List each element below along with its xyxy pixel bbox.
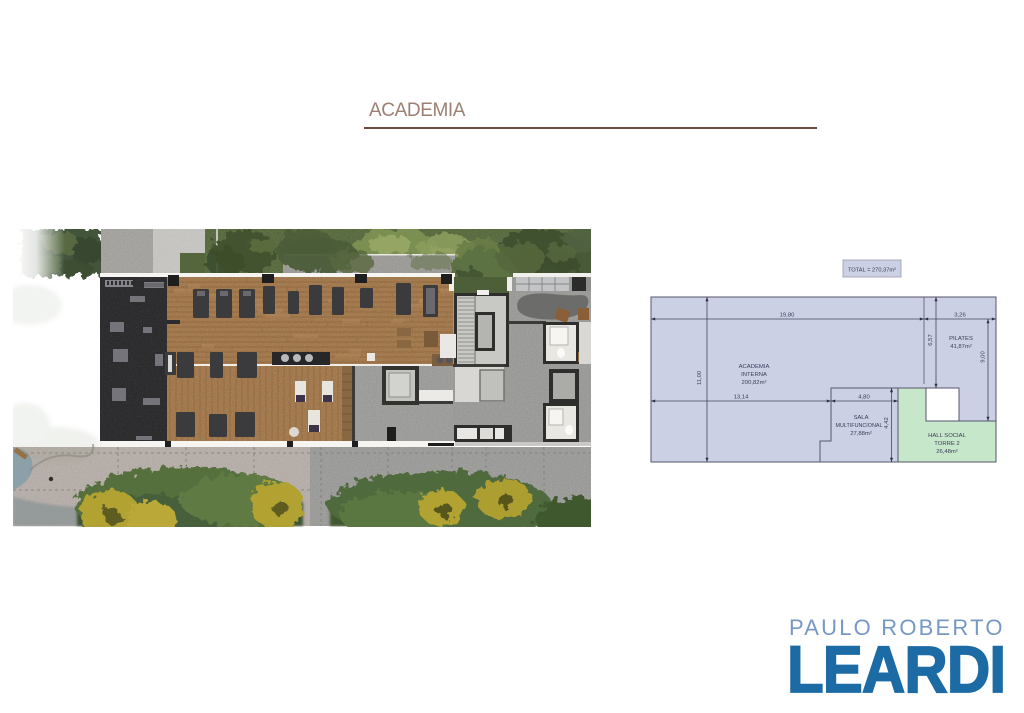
svg-text:3,26: 3,26 — [954, 313, 966, 319]
svg-text:13,14: 13,14 — [734, 395, 749, 401]
svg-text:TOTAL = 270,37m²: TOTAL = 270,37m² — [848, 268, 896, 274]
svg-text:27,88m²: 27,88m² — [850, 431, 872, 437]
svg-text:HALL SOCIAL: HALL SOCIAL — [928, 433, 966, 439]
svg-text:SALA: SALA — [853, 415, 868, 421]
svg-text:9,00: 9,00 — [981, 351, 987, 363]
svg-text:MULTIFUNCIONAL: MULTIFUNCIONAL — [836, 423, 884, 429]
svg-text:26,48m²: 26,48m² — [936, 449, 958, 455]
svg-text:11,00: 11,00 — [697, 370, 703, 385]
svg-text:200,82m²: 200,82m² — [742, 380, 767, 386]
svg-text:PILATES: PILATES — [949, 336, 973, 342]
svg-text:41,87m²: 41,87m² — [950, 344, 972, 350]
svg-text:6,57: 6,57 — [928, 334, 934, 345]
svg-text:INTERNA: INTERNA — [741, 372, 767, 378]
svg-text:4,42: 4,42 — [884, 417, 890, 428]
svg-text:4,80: 4,80 — [858, 395, 870, 401]
svg-text:TORRE 2: TORRE 2 — [934, 441, 959, 447]
svg-text:19,80: 19,80 — [780, 313, 795, 319]
svg-text:ACADEMIA: ACADEMIA — [739, 364, 770, 370]
